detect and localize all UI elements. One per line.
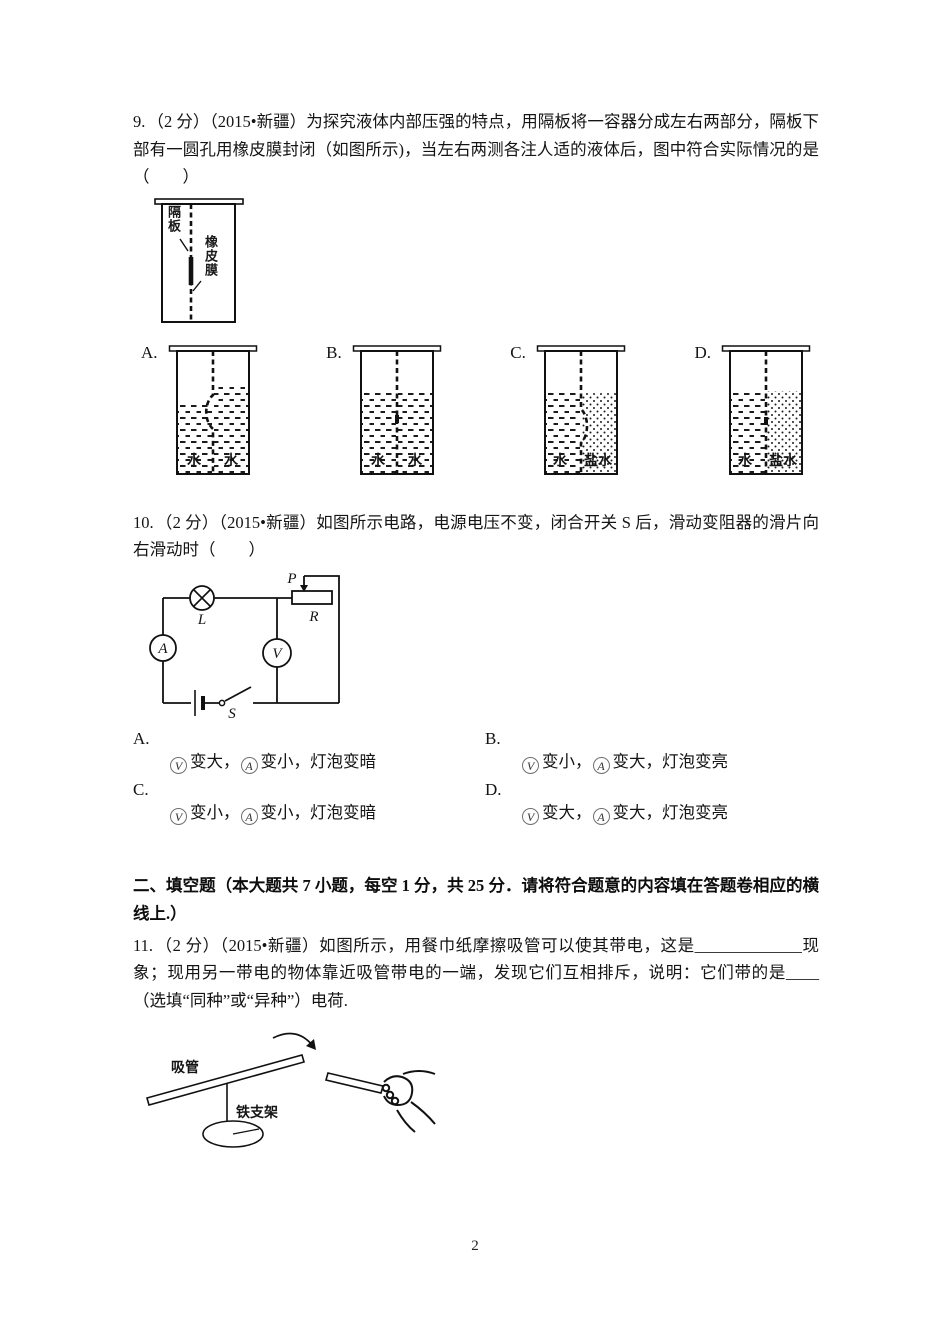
straw-label: 吸管: [171, 1059, 199, 1076]
option-d-right-liquid: 盐水: [769, 452, 798, 469]
option-a: A. 水 水: [141, 343, 258, 479]
question-11-text: 11.（2 分）（2015•新疆）如图所示，用餐巾纸摩擦吸管可以使其带电，这是_…: [133, 932, 819, 1015]
question-9-text: 9.（2 分）（2015•新疆）为探究液体内部压强的特点，用隔板将一容器分成左右…: [133, 108, 819, 191]
page-number: 2: [0, 1238, 950, 1255]
option-d-left-liquid: 水: [738, 452, 753, 469]
question-11: 11.（2 分）（2015•新疆）如图所示，用餐巾纸摩擦吸管可以使其带电，这是_…: [133, 932, 819, 1156]
ammeter-icon: A: [241, 808, 258, 825]
option-c: C. V变小，A变小，灯泡变暗: [133, 780, 485, 826]
option-c-label: C.: [510, 343, 526, 363]
rotation-arrow: [273, 1034, 313, 1047]
option-c-text: V变小，A变小，灯泡变暗: [169, 800, 485, 826]
option-b-left-liquid: 水: [371, 452, 386, 469]
ammeter-label: A: [157, 641, 168, 657]
question-10-body: （2 分）（2015•新疆）如图所示电路，电源电压不变，闭合开关 S 后，滑动变…: [133, 513, 819, 560]
question-11-body: （2 分）（2015•新疆）如图所示，用餐巾纸摩擦吸管可以使其带电，这是____…: [133, 936, 819, 1010]
switch-label: S: [228, 706, 236, 718]
option-b: B. 水 水: [326, 343, 442, 479]
question-9-number: 9.: [133, 112, 145, 131]
option-b-text: V变小，A变大，灯泡变亮: [521, 749, 819, 775]
slider-label: P: [286, 571, 296, 587]
ammeter-icon: A: [593, 757, 610, 774]
question-10: 10.（2 分）（2015•新疆）如图所示电路，电源电压不变，闭合开关 S 后，…: [133, 509, 819, 826]
option-a-right-liquid: 水: [224, 452, 239, 469]
option-c: C. 水 盐水: [510, 343, 626, 479]
rheostat-symbol: [292, 591, 332, 604]
section-2-title: 二、填空题（本大题共 7 小题，每空 1 分，共 25 分．请将符合题意的内容填…: [133, 872, 819, 928]
option-a-label: A.: [141, 343, 158, 363]
option-a-container-figure: 水 水: [168, 343, 258, 479]
question-9-figure: 隔板 橡皮膜: [154, 197, 246, 327]
option-d: D. 水 盐水: [694, 343, 811, 479]
option-b-label: B.: [326, 343, 342, 363]
question-11-number: 11.: [133, 936, 153, 955]
option-c-right-liquid: 盐水: [584, 452, 613, 469]
page-content: 9.（2 分）（2015•新疆）为探究液体内部压强的特点，用隔板将一容器分成左右…: [133, 108, 819, 1155]
straw-experiment-figure: 吸管 铁支架: [141, 1022, 441, 1150]
voltmeter-icon: V: [170, 757, 187, 774]
option-b-right-liquid: 水: [408, 452, 423, 469]
hand-sketch: [383, 1071, 435, 1132]
partition-label: 隔板: [164, 205, 183, 233]
option-d-text: V变大，A变大，灯泡变亮: [521, 800, 819, 826]
option-b: B. V变小，A变大，灯泡变亮: [485, 729, 819, 775]
option-a-label: A.: [133, 729, 475, 749]
charged-rod: [326, 1073, 383, 1093]
ammeter-icon: A: [593, 808, 610, 825]
membrane-label: 橡皮膜: [201, 235, 220, 277]
ammeter-icon: A: [241, 757, 258, 774]
option-d-container-figure: 水 盐水: [721, 343, 811, 479]
option-a-left-liquid: 水: [187, 452, 202, 469]
exam-page: 9.（2 分）（2015•新疆）为探究液体内部压强的特点，用隔板将一容器分成左右…: [0, 0, 950, 1344]
option-c-left-liquid: 水: [553, 452, 568, 469]
question-10-options: A. V变大，A变小，灯泡变暗 B. V变小，A变大，灯泡变亮 C. V变小，A…: [133, 729, 819, 826]
question-9: 9.（2 分）（2015•新疆）为探究液体内部压强的特点，用隔板将一容器分成左右…: [133, 108, 819, 479]
option-b-label: B.: [485, 729, 809, 749]
voltmeter-icon: V: [522, 808, 539, 825]
option-c-container-figure: 水 盐水: [536, 343, 626, 479]
rheostat-label: R: [308, 609, 318, 625]
option-c-label: C.: [133, 780, 475, 800]
option-d-label: D.: [694, 343, 711, 363]
option-a: A. V变大，A变小，灯泡变暗: [133, 729, 485, 775]
option-d-label: D.: [485, 780, 809, 800]
circuit-figure: L P R A V S: [147, 568, 349, 718]
lamp-label: L: [197, 612, 206, 628]
question-10-text: 10.（2 分）（2015•新疆）如图所示电路，电源电压不变，闭合开关 S 后，…: [133, 509, 819, 564]
switch-symbol: [219, 700, 224, 705]
question-9-options: A. 水 水 B.: [133, 343, 819, 479]
stand-label: 铁支架: [236, 1104, 278, 1121]
option-b-container-figure: 水 水: [352, 343, 442, 479]
question-10-number: 10.: [133, 513, 154, 532]
option-d: D. V变大，A变大，灯泡变亮: [485, 780, 819, 826]
voltmeter-icon: V: [170, 808, 187, 825]
voltmeter-icon: V: [522, 757, 539, 774]
question-9-body: （2 分）（2015•新疆）为探究液体内部压强的特点，用隔板将一容器分成左右两部…: [133, 112, 819, 186]
option-a-text: V变大，A变小，灯泡变暗: [169, 749, 485, 775]
